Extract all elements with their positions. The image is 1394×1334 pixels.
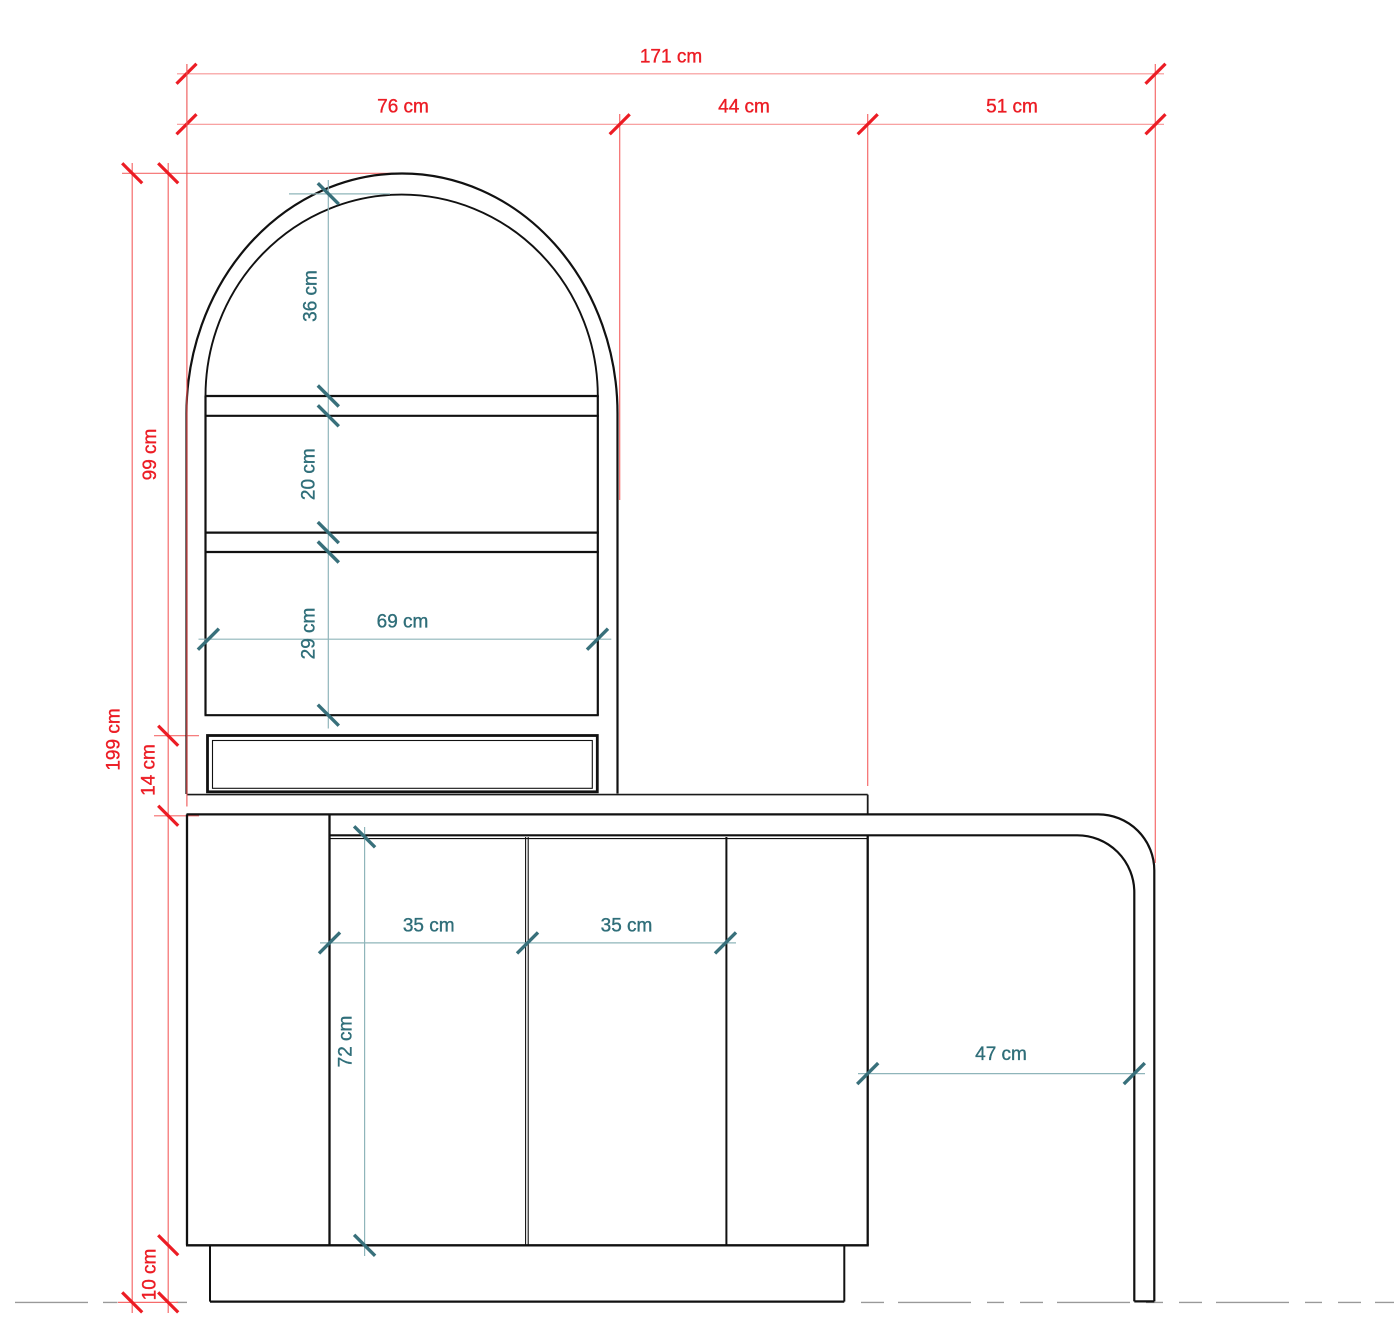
svg-text:72 cm: 72 cm <box>336 1016 357 1068</box>
svg-text:44 cm: 44 cm <box>718 97 770 118</box>
svg-text:99 cm: 99 cm <box>140 429 161 481</box>
svg-text:76 cm: 76 cm <box>377 97 429 118</box>
svg-text:14 cm: 14 cm <box>139 744 160 796</box>
svg-text:36 cm: 36 cm <box>301 270 322 322</box>
svg-text:171 cm: 171 cm <box>640 47 702 68</box>
svg-text:10 cm: 10 cm <box>140 1249 161 1301</box>
svg-text:29 cm: 29 cm <box>299 608 320 660</box>
svg-text:47 cm: 47 cm <box>975 1044 1027 1065</box>
svg-text:35 cm: 35 cm <box>601 916 653 937</box>
svg-text:35 cm: 35 cm <box>403 916 455 937</box>
svg-text:199 cm: 199 cm <box>104 708 125 770</box>
svg-text:51 cm: 51 cm <box>986 97 1038 118</box>
svg-text:20 cm: 20 cm <box>299 448 320 500</box>
svg-text:69 cm: 69 cm <box>377 612 429 633</box>
